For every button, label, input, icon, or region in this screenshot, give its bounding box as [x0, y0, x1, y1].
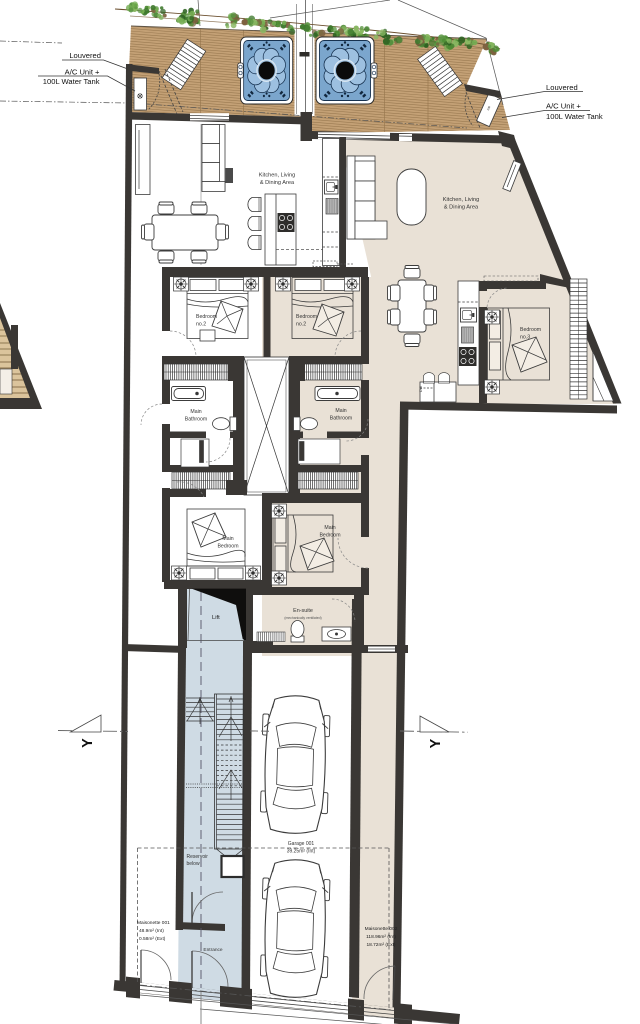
svg-text:Entrance: Entrance [203, 947, 223, 953]
svg-text:Bedroom: Bedroom [217, 544, 238, 550]
svg-text:Bedroom: Bedroom [296, 314, 317, 320]
svg-text:Bedroom: Bedroom [520, 327, 541, 333]
svg-text:En-suite: En-suite [293, 608, 313, 614]
svg-text:Main: Main [324, 525, 335, 531]
svg-text:18.72m² (Ext): 18.72m² (Ext) [366, 942, 395, 948]
svg-text:Bedroom: Bedroom [196, 314, 217, 320]
svg-text:Garage 001: Garage 001 [288, 841, 315, 847]
svg-text:Maisonette 001: Maisonette 001 [137, 920, 170, 926]
svg-text:no.2: no.2 [196, 322, 206, 328]
svg-text:(mechanically ventilated): (mechanically ventilated) [284, 616, 321, 620]
svg-text:0.58m² (Ext): 0.58m² (Ext) [139, 936, 166, 942]
svg-text:no.3: no.3 [520, 335, 530, 341]
svg-text:Reservoir: Reservoir [187, 854, 209, 860]
svg-text:A/C Unit +: A/C Unit + [546, 102, 581, 111]
svg-text:100L Water Tank: 100L Water Tank [546, 112, 603, 121]
svg-text:A/C Unit +: A/C Unit + [65, 68, 100, 77]
svg-text:Main: Main [335, 408, 346, 414]
svg-text:Bathroom: Bathroom [185, 417, 208, 423]
svg-text:Kitchen, Living: Kitchen, Living [259, 173, 295, 179]
svg-text:Louvered: Louvered [69, 51, 101, 60]
svg-text:Y: Y [80, 738, 96, 748]
svg-text:118.96m² (Int): 118.96m² (Int) [366, 934, 396, 940]
svg-text:& Dining Area: & Dining Area [260, 180, 295, 186]
svg-text:100L Water Tank: 100L Water Tank [43, 77, 100, 86]
svg-text:below: below [187, 861, 200, 867]
svg-text:DW: DW [419, 385, 423, 392]
svg-text:no.2: no.2 [296, 322, 306, 328]
svg-text:Kitchen, Living: Kitchen, Living [443, 197, 479, 203]
svg-text:Bathroom: Bathroom [330, 416, 353, 422]
svg-text:Bedroom: Bedroom [319, 533, 340, 539]
svg-text:Main: Main [222, 536, 233, 542]
svg-text:Y: Y [428, 738, 444, 748]
svg-text:48.9m² (Int): 48.9m² (Int) [139, 928, 164, 934]
svg-text:Lift: Lift [212, 615, 220, 621]
svg-text:39.25m² (Int): 39.25m² (Int) [287, 849, 316, 855]
svg-text:Louvered: Louvered [546, 83, 578, 92]
svg-text:Maisonette 002: Maisonette 002 [365, 926, 398, 932]
svg-text:Main: Main [190, 409, 201, 415]
svg-text:& Dining Area: & Dining Area [444, 205, 479, 211]
